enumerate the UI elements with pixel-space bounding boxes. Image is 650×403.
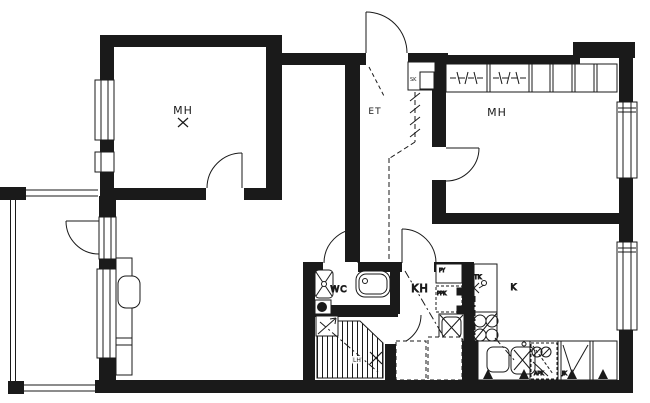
room-label-wc: WC [330,285,347,295]
cleaning-closet [408,62,435,90]
balcony-post [0,187,26,200]
balcony-post [8,381,24,394]
window [95,80,114,140]
window [617,102,637,178]
room-label-bedroom1: MH [173,104,193,117]
floor-plan: MH SK ET [0,0,650,403]
bedroom-1: MH [173,104,193,127]
light-point-x [178,118,188,127]
toilet [315,300,331,314]
label-jk: JK [561,371,567,377]
door-entry [366,12,407,96]
label-py: PY [439,268,446,274]
furniture-seat [118,276,140,308]
bathtub [356,271,390,297]
kitchen: TK [469,264,617,380]
water-point [457,306,463,313]
floor-plan-drawing: MH SK ET [0,0,650,403]
bathroom: PY PPK KH [396,264,465,380]
room-label-bathroom: KH [411,282,429,295]
room-label-hallway: ET [368,107,381,117]
room-label-sauna: LH [353,357,361,364]
sauna-heater-box [316,316,338,336]
label-ppk: PPK [437,291,447,297]
reservation-dashed [396,341,426,380]
door-bathroom [402,229,436,263]
door-bedroom2 [446,148,479,181]
balcony [0,187,98,394]
room-label-bedroom2: MH [487,106,507,119]
bedroom-2: MH [446,64,617,119]
label-tk: TK [473,274,483,281]
window [617,242,637,330]
closet-label-sk: SK [410,77,417,83]
room-label-kitchen: K [511,283,518,293]
sauna: LH [316,316,383,378]
water-point [457,288,463,295]
window [95,152,114,172]
window [97,269,116,358]
label-apk: APK [534,371,544,377]
door-balcony [66,221,99,254]
balcony-door-opening [99,217,116,259]
coat-rack [389,92,420,261]
wardrobe-row [446,64,617,92]
door-bedroom1 [207,153,242,188]
living-room [116,258,140,375]
reservation-dashed [428,337,462,380]
